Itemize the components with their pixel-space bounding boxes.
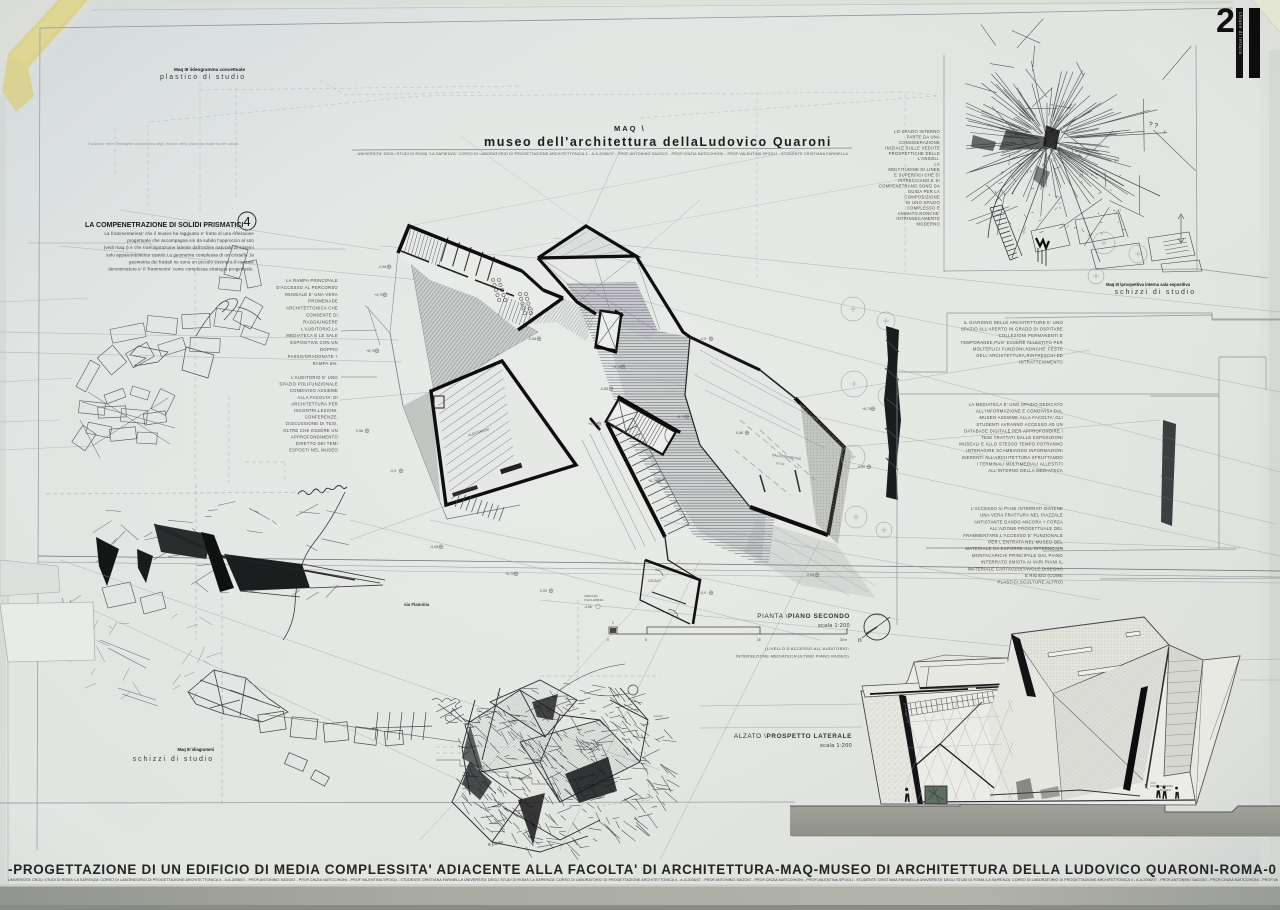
svg-text:Maq III \diagrammi: Maq III \diagrammi	[177, 747, 214, 752]
svg-text:MODERNO: MODERNO	[917, 222, 940, 227]
svg-text:ARCHITETTONICA CHE: ARCHITETTONICA CHE	[286, 306, 338, 311]
svg-text:RAMPA 5%.: RAMPA 5%.	[313, 361, 338, 366]
svg-text:MUSEALI E ALLO STESSO TEMPO PO: MUSEALI E ALLO STESSO TEMPO POTRANNO	[959, 442, 1063, 447]
svg-text:INIZIALE SULLE VEDUTE: INIZIALE SULLE VEDUTE	[885, 145, 940, 150]
svg-text:-0,9: -0,9	[700, 591, 706, 595]
svg-text:MAQ \: MAQ \	[614, 124, 646, 133]
svg-text:INTRECCIANO,E SI: INTRECCIANO,E SI	[898, 178, 940, 183]
svg-text:-4,56: -4,56	[584, 605, 592, 609]
svg-text:- UNIVERSITA' DEGLI STUDI DI R: - UNIVERSITA' DEGLI STUDI DI ROMA "LA SA…	[355, 152, 848, 156]
svg-text:ANIMATO,NONCHE': ANIMATO,NONCHE'	[898, 211, 940, 216]
svg-text:ALZATO \PROSPETTO LATERALE: ALZATO \PROSPETTO LATERALE	[734, 733, 852, 740]
svg-text:+8,70: +8,70	[676, 415, 685, 419]
svg-text:0,00: 0,00	[540, 589, 547, 593]
svg-text:denominatore e' il 'frammento: denominatore e' il 'frammento' come comp…	[108, 267, 254, 272]
svg-text:ALL'AZIONE PROGETTUALE DEL: ALL'AZIONE PROGETTUALE DEL	[990, 526, 1064, 531]
svg-text:via Flaminia: via Flaminia	[404, 602, 430, 607]
svg-text:geometria dei frattali ne sono: geometria dei frattali ne sono un piccol…	[129, 259, 254, 264]
svg-text:L'ANGOLI.: L'ANGOLI.	[918, 156, 940, 161]
svg-text:INTERRATO SMISTA AI VARI PIANI: INTERRATO SMISTA AI VARI PIANI IL	[981, 560, 1064, 565]
svg-text:-0,9: -0,9	[700, 337, 706, 341]
svg-text:TEMPORANEE,PUO' ESSERE ALLESTI: TEMPORANEE,PUO' ESSERE ALLESTITO PER	[960, 340, 1063, 345]
svg-text:MOLTEPLICI FUNZIONI,NONCHE' FE: MOLTEPLICI FUNZIONI,NONCHE' FESTE	[973, 346, 1063, 351]
svg-text:ALL'INFORMAZIONE E CONDIVISA D: ALL'INFORMAZIONE E CONDIVISA DAL	[976, 409, 1064, 414]
svg-text:PROMENADE: PROMENADE	[308, 299, 338, 304]
svg-text:-0,9: -0,9	[390, 469, 396, 473]
svg-text:-0,08: -0,08	[430, 545, 438, 549]
svg-text:MONTACARICHI PRINCIPALE DAL PI: MONTACARICHI PRINCIPALE DAL PIANO	[972, 553, 1063, 558]
svg-text:RAGGIUNGERE: RAGGIUNGERE	[303, 319, 338, 324]
svg-text:0,56: 0,56	[356, 429, 363, 433]
svg-text:schizzi di studio: schizzi di studio	[133, 756, 214, 763]
svg-text:COMPENETRANO SONO DA: COMPENETRANO SONO DA	[879, 184, 940, 189]
svg-text:+8,70: +8,70	[366, 349, 375, 353]
svg-text:PASSO/GRADONATE +: PASSO/GRADONATE +	[288, 354, 338, 359]
svg-text:4: 4	[243, 214, 250, 229]
svg-text:CONSENTE DI: CONSENTE DI	[306, 313, 338, 318]
svg-text:CONSIDERAZIONE: CONSIDERAZIONE	[899, 140, 940, 145]
svg-text:La frammentarieta' che il muse: La frammentarieta' che il museo ha raggi…	[104, 231, 254, 236]
svg-text:L'AUDITORIO,LA: L'AUDITORIO,LA	[301, 326, 338, 331]
svg-text:LA MEDIATECA E' UNO SPAZIO DED: LA MEDIATECA E' UNO SPAZIO DEDICATO	[969, 402, 1064, 407]
svg-text:5: 5	[645, 638, 647, 642]
svg-text:ALLA FACOLTA' DI: ALLA FACOLTA' DI	[297, 395, 338, 400]
svg-text:scala 1:200: scala 1:200	[820, 743, 852, 749]
svg-text:2: 2	[1216, 2, 1235, 40]
svg-text:progettuale che accompagna sin: progettuale che accompagna sin da subito…	[127, 238, 254, 243]
svg-text:LA: LA	[934, 162, 940, 167]
svg-text:PLASTICI,SCULTURE,ALTRO): PLASTICI,SCULTURE,ALTRO)	[998, 580, 1064, 585]
svg-text:MUSEO: MUSEO	[1160, 788, 1172, 792]
svg-text:ANTISTANTE DANDO ANCORA + FORZ: ANTISTANTE DANDO ANCORA + FORZA	[974, 519, 1063, 524]
svg-text:-0,56: -0,56	[378, 265, 386, 269]
svg-text:DISCUSSIONE DI TESI,: DISCUSSIONE DI TESI,	[286, 421, 338, 426]
svg-text:INTRATTENIMENTO: INTRATTENIMENTO	[1019, 360, 1063, 365]
svg-text:(LIVELLO D'ACCESSO ALL'AUDITOR: (LIVELLO D'ACCESSO ALL'AUDITORIO\	[765, 646, 849, 651]
svg-text:INTERSEZIONE MEDIATECA\ULTIMO: INTERSEZIONE MEDIATECA\ULTIMO PIANO MUSE…	[736, 654, 849, 659]
svg-text:IL GIARDINO DELLE ARCHITETTURE: IL GIARDINO DELLE ARCHITETTURE E' UNO	[964, 320, 1064, 325]
svg-text:MATERIALE DA ESPORRE ALL'INTER: MATERIALE DA ESPORRE ALL'INTERNO,UN	[965, 546, 1063, 551]
svg-text:COMPOSIZIONE: COMPOSIZIONE	[905, 194, 940, 199]
svg-text:1: 1	[612, 621, 614, 625]
svg-text:I TERMINALI MULTIMEDIALI ALLES: I TERMINALI MULTIMEDIALI ALLESTITI	[977, 461, 1063, 466]
svg-text:INTERAGIRE SCAMBIANDO INFORMAZ: INTERAGIRE SCAMBIANDO INFORMAZIONI	[966, 448, 1063, 453]
svg-text:plastico di studio: plastico di studio	[160, 74, 246, 81]
svg-text:+6,70: +6,70	[505, 572, 514, 576]
svg-text:INCONTRI,LEZIONI,: INCONTRI,LEZIONI,	[294, 408, 338, 413]
svg-text:COLLEZIONI PERMANENTI E: COLLEZIONI PERMANENTI E	[999, 333, 1063, 338]
svg-text:+4,70: +4,70	[374, 293, 383, 297]
svg-text:DELL'ARCHITETTURA,RINFRESCHI E: DELL'ARCHITETTURA,RINFRESCHI ED	[976, 353, 1063, 358]
svg-text:ALL'INTERNO DELLA MEDIATECA: ALL'INTERNO DELLA MEDIATECA	[988, 468, 1063, 473]
svg-text:VIA FLAMINIA: VIA FLAMINIA	[584, 598, 603, 602]
svg-text:PARTE DA UNA: PARTE DA UNA	[907, 134, 940, 139]
svg-text:+4,70: +4,70	[612, 365, 621, 369]
svg-text:PER L'ENTRATA NEL MUSEO DEL: PER L'ENTRATA NEL MUSEO DEL	[988, 540, 1063, 545]
svg-text:-0,56: -0,56	[600, 387, 608, 391]
svg-text:DOPPIO: DOPPIO	[320, 347, 339, 352]
svg-text:MEDIATECA E LE SALE: MEDIATECA E LE SALE	[286, 333, 338, 338]
svg-text:D'ACCESSO AL PERCORSO: D'ACCESSO AL PERCORSO	[276, 285, 338, 290]
svg-text:CONDIVISO ASSIEME: CONDIVISO ASSIEME	[290, 388, 338, 393]
svg-text:Maq III \prospettiva interna s: Maq III \prospettiva interna sala esposi…	[1106, 282, 1191, 287]
svg-text:COMPLESSO E: COMPLESSO E	[907, 205, 940, 210]
svg-text:DI UNO SPAZIO: DI UNO SPAZIO	[906, 200, 940, 205]
svg-text:-0,08: -0,08	[806, 573, 814, 577]
svg-text:MATERIALE CARTACEO(TAVOLE,DISE: MATERIALE CARTACEO(TAVOLE,DISEGNI)	[968, 566, 1063, 571]
svg-text:INTRINSECAMENTE: INTRINSECAMENTE	[896, 216, 940, 221]
svg-text:L'ACCESSO AI PIANI INTERRATI D: L'ACCESSO AI PIANI INTERRATI DIVIENE	[971, 506, 1063, 511]
svg-text:chiave di lettura: chiave di lettura	[1238, 12, 1243, 54]
svg-text:Maq III \ideogramma concettual: Maq III \ideogramma concettuale	[174, 67, 245, 72]
svg-text:15: 15	[757, 638, 761, 642]
svg-text:CONFERENZE,: CONFERENZE,	[305, 415, 338, 420]
svg-text:TEMI TRATTATI DALLE ESPOSIZION: TEMI TRATTATI DALLE ESPOSIZIONI	[981, 435, 1063, 440]
svg-text:OLTRE CHE ESSERE UN: OLTRE CHE ESSERE UN	[283, 428, 338, 433]
svg-text:il plastico vede l'immagine co: il plastico vede l'immagine complessiva …	[88, 142, 239, 146]
svg-text:ESPOSTI NEL MUSEO: ESPOSTI NEL MUSEO	[289, 448, 338, 453]
svg-text:n: n	[858, 637, 862, 644]
svg-text:scala 1:200: scala 1:200	[818, 623, 850, 629]
svg-text:INERENTI ALL'ARCHITETTURA SFRU: INERENTI ALL'ARCHITETTURA SFRUTTANDO	[962, 455, 1064, 460]
svg-text:+6,70: +6,70	[862, 407, 871, 411]
svg-text:+8,70: +8,70	[648, 479, 657, 483]
svg-text:SPAZIO POLIFUNZIONALE: SPAZIO POLIFUNZIONALE	[279, 382, 338, 387]
svg-text:0: 0	[607, 638, 609, 642]
svg-text:+4,70: +4,70	[588, 422, 597, 426]
svg-text:MUSEALE E' UNA VERA: MUSEALE E' UNA VERA	[285, 292, 338, 297]
svg-text:ARCHITETTURA PER: ARCHITETTURA PER	[291, 401, 338, 406]
svg-text:PIANTA \PIANO SECONDO: PIANTA \PIANO SECONDO	[757, 613, 850, 620]
svg-text:0,56: 0,56	[736, 431, 743, 435]
svg-text:-0,56: -0,56	[528, 337, 536, 341]
svg-text:schizzi di studio: schizzi di studio	[1115, 289, 1196, 296]
svg-text:museo dell'architettura dellaL: museo dell'architettura dellaLudovico Qu…	[484, 135, 832, 149]
svg-text:30 m: 30 m	[840, 638, 847, 642]
svg-text:UNIVERSITA' DEGLI STUDI DI ROM: UNIVERSITA' DEGLI STUDI DI ROMA 'LA SAPI…	[8, 878, 1278, 882]
svg-text:GUIDA PER LA: GUIDA PER LA	[908, 189, 940, 194]
svg-text:-PROGETTAZIONE DI UN EDIFICIO: -PROGETTAZIONE DI UN EDIFICIO DI MEDIA C…	[8, 862, 1278, 877]
svg-text:STUDENTI AVRANNO ACCESSO AD UN: STUDENTI AVRANNO ACCESSO AD UN	[976, 422, 1063, 427]
svg-text:DATABASE DIGITALE PER APPROFON: DATABASE DIGITALE PER APPROFONDIRE I	[964, 428, 1063, 433]
svg-text:E RIGIDO (COME: E RIGIDO (COME	[1025, 573, 1063, 578]
svg-text:LA RAMPA PRINCIPALE: LA RAMPA PRINCIPALE	[286, 278, 338, 283]
svg-text:DIRETTO DEI TEMI: DIRETTO DEI TEMI	[296, 441, 338, 446]
svg-text:FRAMMENTARE,L'ACCESSO E' FUNZI: FRAMMENTARE,L'ACCESSO E' FUNZIONALE	[963, 533, 1063, 538]
svg-text:SPAZIO ALL'APERTO IN GRADO DI: SPAZIO ALL'APERTO IN GRADO DI OSPITARE	[961, 327, 1063, 332]
svg-text:0,00: 0,00	[858, 465, 865, 469]
svg-text:solo apparentemente caotici.La: solo apparentemente caotici.La geometria…	[106, 252, 254, 257]
svg-text:ESPOSITIVE CON UN: ESPOSITIVE CON UN	[290, 340, 338, 345]
svg-text:PROSPETTICHE DELLE: PROSPETTICHE DELLE	[889, 151, 940, 156]
svg-text:L'AUDITORIO E' UNO: L'AUDITORIO E' UNO	[291, 375, 338, 380]
svg-text:MOLTITUDINE DI LINEE: MOLTITUDINE DI LINEE	[888, 167, 940, 172]
svg-text:LO SPAZIO INTERNO: LO SPAZIO INTERNO	[894, 129, 940, 134]
svg-text:LOCALE: LOCALE	[648, 579, 661, 583]
svg-text:UNA VERA FRATTURA NEL PIAZZALE: UNA VERA FRATTURA NEL PIAZZALE	[980, 513, 1063, 518]
svg-text:MUSEO ASSIEME ALLA FACOLTA',GL: MUSEO ASSIEME ALLA FACOLTA',GLI	[980, 415, 1063, 420]
svg-text:APPROFONDIMENTO: APPROFONDIMENTO	[291, 434, 339, 439]
